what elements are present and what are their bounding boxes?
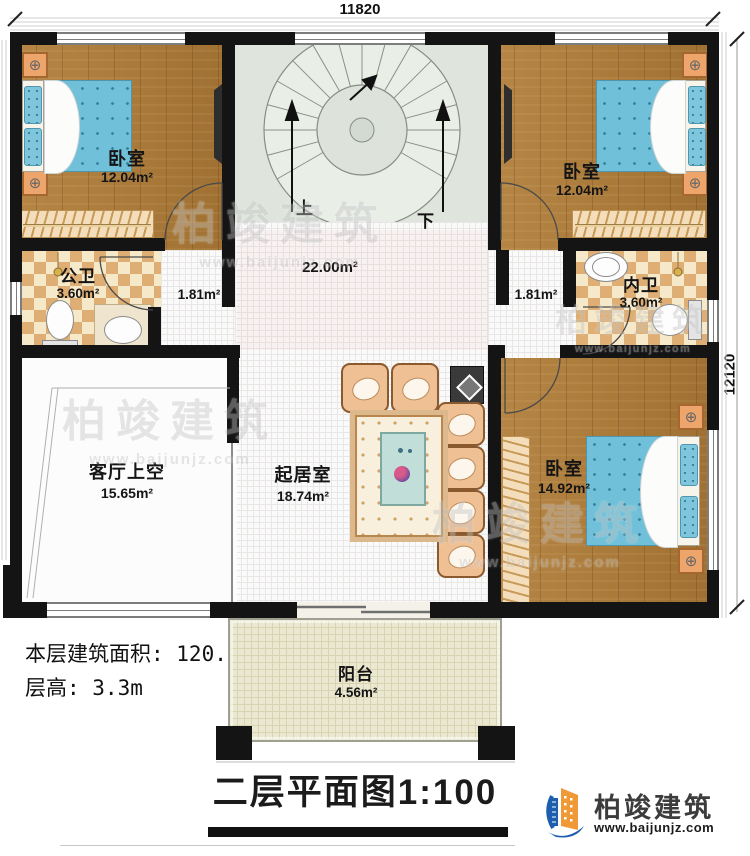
plan-title-text: 二层平面图 — [213, 773, 398, 812]
wall — [222, 32, 235, 250]
wall — [558, 238, 719, 251]
wall — [10, 32, 22, 618]
room-area-bedroom-bottomright: 14.92m² — [514, 481, 614, 496]
room-area-family: 18.74m² — [253, 489, 353, 504]
window — [10, 282, 22, 315]
room-area-corridor-left: 1.81m² — [163, 288, 235, 302]
room-label-bedroom-topleft: 卧室 — [77, 150, 177, 169]
room-label-bedroom-topright: 卧室 — [532, 163, 632, 182]
pillow — [24, 128, 42, 166]
room-area-bedroom-topright: 12.04m² — [532, 183, 632, 198]
wardrobe — [20, 210, 154, 238]
room-area-bath-right: 3.60m² — [601, 296, 681, 310]
table-decor — [394, 466, 410, 482]
wardrobe — [572, 210, 706, 238]
brand-logo-icon — [546, 782, 586, 842]
tv-stand — [450, 366, 484, 404]
tv-panel — [214, 84, 222, 164]
room-area-balcony: 4.56m² — [316, 686, 396, 700]
room-area-bath-left: 3.60m² — [38, 287, 118, 301]
balcony-door-opening — [297, 602, 430, 618]
room-label-living-void: 客厅上空 — [67, 463, 187, 482]
balcony-column — [478, 726, 515, 760]
stair-up-label: 上 — [296, 194, 313, 219]
title-underline-bar — [208, 827, 508, 837]
pillow — [680, 496, 698, 538]
title-underline-thin — [60, 845, 515, 846]
table-decor-dot — [398, 448, 403, 453]
room-label-bath-right: 内卫 — [601, 277, 681, 295]
sofa-seat — [341, 363, 389, 413]
pillow — [688, 128, 706, 166]
window — [47, 602, 210, 618]
wall — [488, 358, 501, 602]
lamp-dial-icon: ⊕ — [29, 58, 42, 73]
nightstand: ⊕ — [682, 52, 708, 78]
pillow — [24, 86, 42, 124]
sofa-seat — [391, 363, 439, 413]
hall-tint — [237, 230, 488, 350]
room-area-bedroom-topleft: 12.04m² — [77, 170, 177, 185]
tv-panel — [504, 84, 512, 164]
nightstand: ⊕ — [22, 52, 48, 78]
toilet-bowl — [46, 300, 74, 340]
room-label-bath-left: 公卫 — [38, 268, 118, 286]
wall-void-stub — [227, 358, 239, 443]
room-label-bedroom-bottomright: 卧室 — [514, 460, 614, 479]
lamp-dial-icon: ⊕ — [689, 176, 702, 191]
room-area-living-void: 15.65m² — [67, 486, 187, 501]
nightstand: ⊕ — [678, 404, 704, 430]
wall — [560, 345, 719, 358]
window — [295, 32, 425, 45]
nightstand: ⊕ — [678, 548, 704, 574]
wall — [10, 345, 240, 358]
wall — [488, 345, 505, 358]
pillow — [680, 444, 698, 486]
floorplan-canvas: ⊕ ⊕ ⊕ ⊕ ⊕ ⊕ — [0, 0, 750, 856]
plan-title: 二层平面图1:100 — [150, 764, 560, 815]
window — [555, 32, 668, 45]
dimension-right: 12120 — [722, 345, 739, 405]
stair-down-label: 下 — [417, 207, 434, 232]
balcony-column — [216, 726, 252, 760]
room-area-corridor-right: 1.81m² — [500, 288, 572, 302]
window — [707, 430, 719, 570]
floor-height-note: 层高: 3.3m — [25, 672, 143, 702]
room-area-hall: 22.00m² — [275, 260, 385, 276]
room-label-family: 起居室 — [253, 466, 353, 485]
stairwell-floor — [235, 32, 488, 222]
brand-url: www.baijunjz.com — [594, 820, 714, 835]
lamp-dial-icon: ⊕ — [29, 176, 42, 191]
lamp-dial-icon: ⊕ — [689, 58, 702, 73]
wall-corner — [3, 565, 22, 618]
room-label-balcony: 阳台 — [316, 666, 396, 684]
dimension-top: 11820 — [300, 1, 420, 18]
plan-title-scale: 1:100 — [398, 773, 498, 812]
sink-basin — [104, 316, 142, 344]
brand-logo: 柏竣建筑 www.baijunjz.com — [546, 780, 746, 850]
window — [57, 32, 185, 45]
pillow — [688, 86, 706, 124]
lamp-dial-icon: ⊕ — [685, 554, 698, 569]
sink-basin-inner — [592, 257, 620, 277]
wall — [488, 32, 501, 250]
window — [707, 300, 719, 342]
logo-tower-orange — [561, 788, 578, 830]
lamp-dial-icon: ⊕ — [685, 410, 698, 425]
wall — [10, 238, 165, 251]
table-decor-dot — [408, 449, 412, 453]
toilet-tank — [688, 300, 702, 340]
